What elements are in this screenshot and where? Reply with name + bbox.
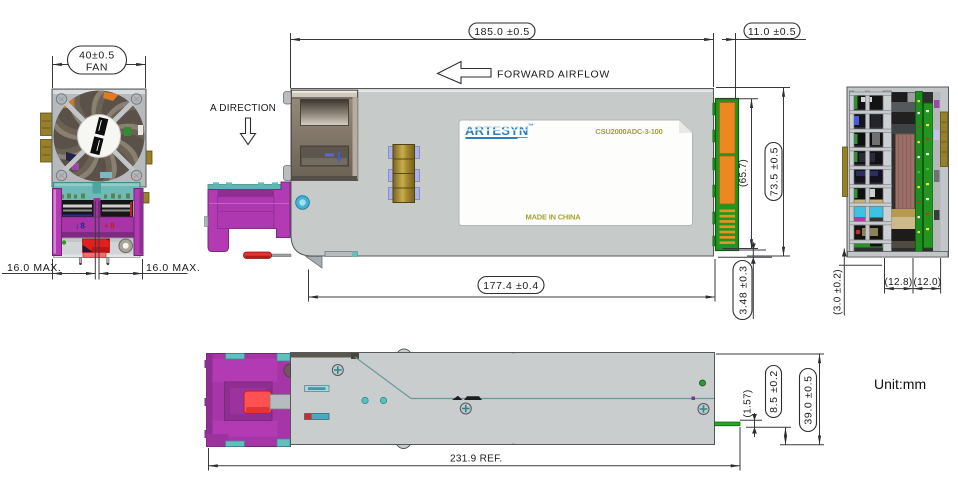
svg-text:A DIRECTION: A DIRECTION (210, 103, 276, 114)
svg-text:CSU2000ADC-3-100: CSU2000ADC-3-100 (595, 127, 662, 136)
svg-text:Unit:mm: Unit:mm (874, 376, 926, 392)
svg-text:231.9 REF.: 231.9 REF. (450, 454, 502, 465)
svg-text:+8: +8 (104, 221, 116, 231)
svg-text:39.0 ±0.5: 39.0 ±0.5 (803, 375, 815, 424)
svg-text:73.5 ±0.5: 73.5 ±0.5 (769, 147, 781, 196)
svg-text:(1.57): (1.57) (743, 390, 754, 418)
svg-text:(3.0 ±0.2): (3.0 ±0.2) (833, 269, 844, 315)
svg-text:16.0 MAX.: 16.0 MAX. (146, 262, 200, 274)
svg-text:185.0 ±0.5: 185.0 ±0.5 (474, 26, 530, 38)
svg-text:MADE IN CHINA: MADE IN CHINA (526, 213, 582, 222)
svg-text:FAN: FAN (86, 62, 108, 74)
svg-text:↓8: ↓8 (75, 221, 86, 231)
svg-text:(65.7): (65.7) (738, 159, 749, 187)
svg-text:FORWARD AIRFLOW: FORWARD AIRFLOW (497, 69, 610, 81)
svg-text:™: ™ (528, 124, 534, 130)
svg-text:(12.0): (12.0) (914, 277, 942, 288)
svg-text:40±0.5: 40±0.5 (79, 50, 115, 62)
svg-text:11.0 ±0.5: 11.0 ±0.5 (748, 26, 796, 38)
svg-text:16.0 MAX.: 16.0 MAX. (7, 262, 61, 274)
svg-text:(12.8): (12.8) (885, 277, 913, 288)
svg-text:177.4 ±0.4: 177.4 ±0.4 (483, 280, 539, 292)
svg-text:3.48 ±0.3: 3.48 ±0.3 (738, 265, 750, 314)
svg-text:8.5 ±0.2: 8.5 ±0.2 (768, 370, 780, 413)
